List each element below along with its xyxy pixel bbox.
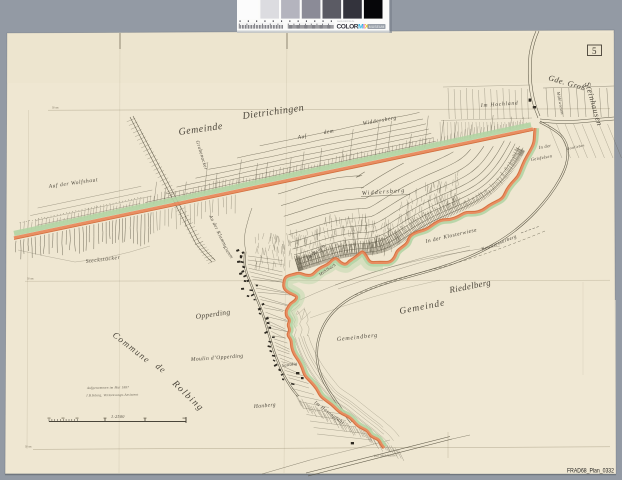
svg-text:FRAD68_Plan_0332: FRAD68_Plan_0332 xyxy=(567,468,614,475)
svg-text:COLORMIX: COLORMIX xyxy=(337,24,370,31)
svg-text:Aufgenommen im Mai 1887: Aufgenommen im Mai 1887 xyxy=(86,385,129,390)
svg-text:www.colormix.de: www.colormix.de xyxy=(337,20,355,23)
svg-text:30 cm: 30 cm xyxy=(27,278,33,281)
svg-text:1:2500: 1:2500 xyxy=(111,414,125,419)
svg-text:30 cm: 30 cm xyxy=(25,446,31,449)
svg-text:Zur Mühlhauser: Zur Mühlhauser xyxy=(374,453,398,458)
svg-text:5: 5 xyxy=(592,46,597,56)
svg-text:30 cm: 30 cm xyxy=(52,107,58,110)
svg-text:MUSEUM: MUSEUM xyxy=(369,25,385,29)
